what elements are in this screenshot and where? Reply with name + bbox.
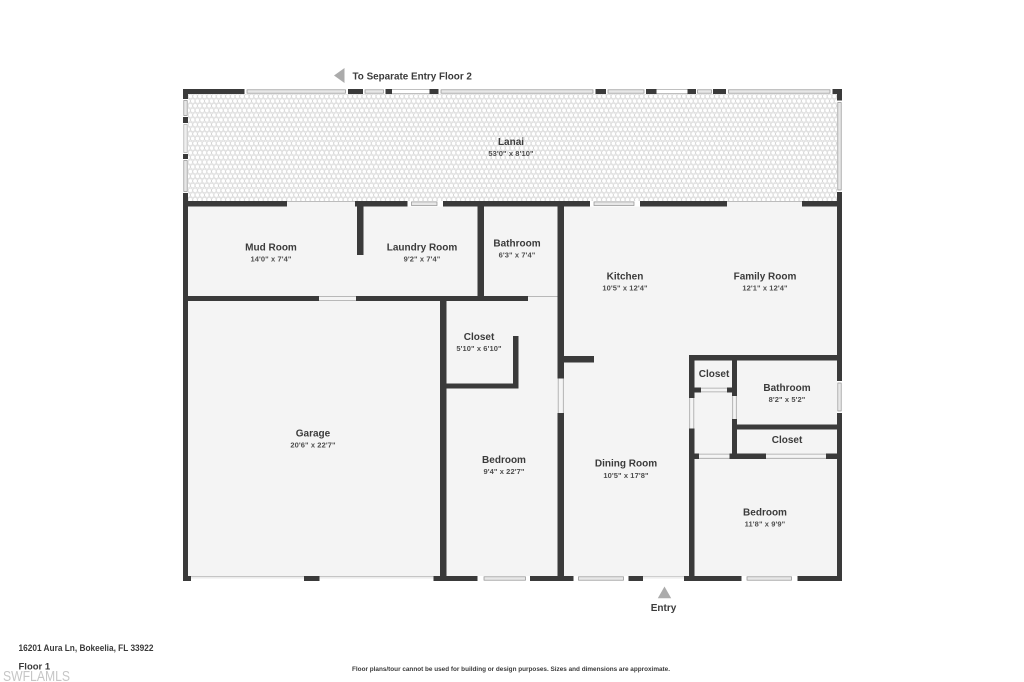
svg-text:Closet: Closet — [699, 369, 730, 380]
svg-text:14'0" x 7'4": 14'0" x 7'4" — [250, 255, 291, 264]
svg-text:Garage: Garage — [296, 429, 331, 440]
svg-text:Closet: Closet — [772, 435, 803, 446]
svg-text:Family Room: Family Room — [734, 272, 797, 283]
svg-text:Lanai: Lanai — [498, 137, 524, 148]
svg-text:10'5" x 17'8": 10'5" x 17'8" — [603, 471, 649, 480]
svg-text:Bedroom: Bedroom — [482, 455, 526, 466]
svg-text:Bathroom: Bathroom — [493, 239, 540, 250]
svg-text:Floor plans/tour cannot be use: Floor plans/tour cannot be used for buil… — [352, 666, 670, 673]
svg-text:6'3" x 7'4": 6'3" x 7'4" — [499, 251, 536, 260]
svg-text:20'6" x 22'7": 20'6" x 22'7" — [290, 441, 336, 450]
svg-text:9'4" x 22'7": 9'4" x 22'7" — [483, 467, 524, 476]
svg-text:10'5" x 12'4": 10'5" x 12'4" — [602, 284, 648, 293]
svg-text:Mud Room: Mud Room — [245, 243, 297, 254]
svg-text:To Separate Entry Floor 2: To Separate Entry Floor 2 — [353, 72, 473, 83]
svg-text:Bedroom: Bedroom — [743, 508, 787, 519]
svg-text:9'2" x 7'4": 9'2" x 7'4" — [404, 255, 441, 264]
svg-text:12'1" x 12'4": 12'1" x 12'4" — [742, 284, 788, 293]
svg-text:Closet: Closet — [464, 332, 495, 343]
svg-text:16201 Aura Ln, Bokeelia, FL 33: 16201 Aura Ln, Bokeelia, FL 33922 — [19, 643, 154, 654]
svg-text:11'8" x 9'9": 11'8" x 9'9" — [745, 520, 786, 529]
svg-text:SWFLAMLS: SWFLAMLS — [3, 668, 70, 682]
svg-text:5'10" x 6'10": 5'10" x 6'10" — [456, 344, 502, 353]
svg-text:8'2" x 5'2": 8'2" x 5'2" — [769, 395, 806, 404]
svg-text:Bathroom: Bathroom — [763, 383, 810, 394]
svg-text:Entry: Entry — [651, 603, 677, 614]
svg-text:Dining Room: Dining Room — [595, 459, 657, 470]
svg-text:53'0" x 8'10": 53'0" x 8'10" — [488, 149, 534, 158]
svg-text:Kitchen: Kitchen — [607, 272, 644, 283]
svg-text:Laundry Room: Laundry Room — [387, 243, 458, 254]
